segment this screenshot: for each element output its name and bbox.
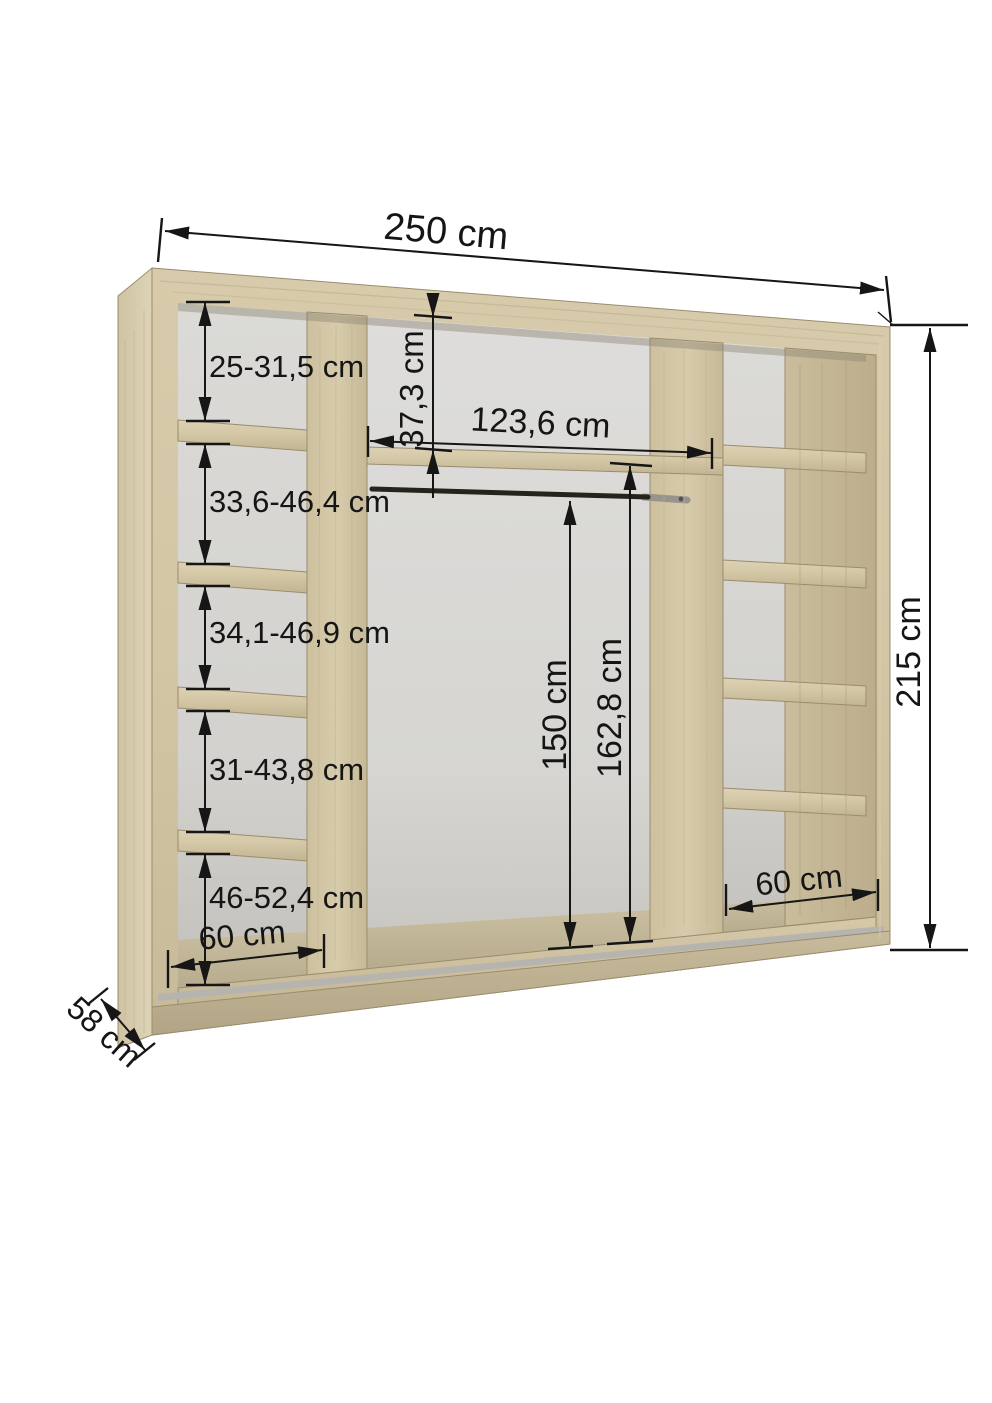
left-side-panel (118, 268, 152, 1048)
dim-middle-height-label: 162,8 cm (591, 638, 629, 778)
dim-left-section-5-label: 46-52,4 cm (209, 880, 364, 915)
rail-screw (679, 497, 684, 502)
dim-total-height: 215 cm (878, 312, 968, 950)
dim-rail-height-label: 150 cm (536, 659, 574, 771)
dim-left-section-4-label: 31-43,8 cm (209, 752, 364, 787)
dim-middle-width-label: 123,6 cm (470, 400, 612, 445)
dim-left-section-3-label: 34,1-46,9 cm (209, 615, 390, 650)
right-side-inner-face (785, 348, 876, 926)
dim-left-section-1-label: 25-31,5 cm (209, 349, 364, 384)
diagram-canvas: 250 cm 25-31,5 cm 33,6-46,4 cm 34,1-46,9… (0, 0, 992, 1403)
right-column-back-panel (723, 343, 785, 905)
dim-total-height-label: 215 cm (890, 596, 928, 708)
extension-tick (158, 218, 162, 262)
divider-right (650, 338, 723, 940)
dim-left-width-label: 60 cm (197, 913, 287, 956)
extension-tick (886, 276, 891, 322)
dim-top-gap-label: 37,3 cm (393, 330, 430, 447)
wardrobe-dimension-diagram: 250 cm 25-31,5 cm 33,6-46,4 cm 34,1-46,9… (0, 0, 992, 1403)
dim-left-section-2-label: 33,6-46,4 cm (209, 484, 390, 519)
